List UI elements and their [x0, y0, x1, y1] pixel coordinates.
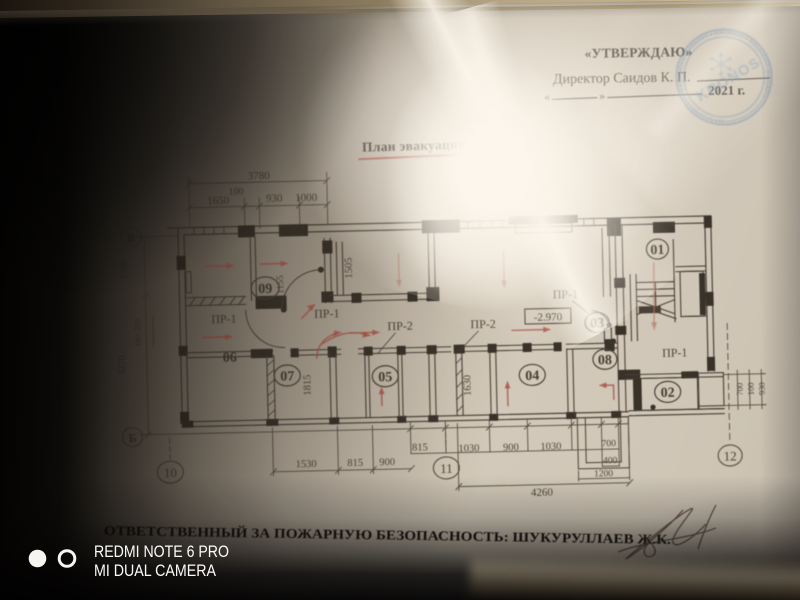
svg-text:REDMI NOTE 6 PRO: REDMI NOTE 6 PRO	[94, 543, 229, 561]
svg-text:MI DUAL CAMERA: MI DUAL CAMERA	[94, 562, 216, 580]
